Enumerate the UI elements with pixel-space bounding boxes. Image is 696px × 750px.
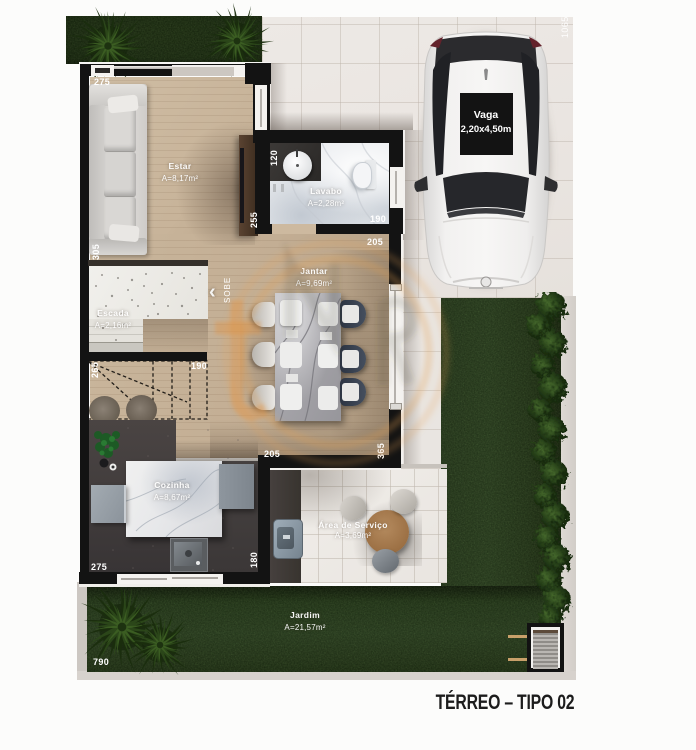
svg-text:2,20x4,50m: 2,20x4,50m [461,124,512,135]
svg-text:Vaga: Vaga [474,109,499,121]
